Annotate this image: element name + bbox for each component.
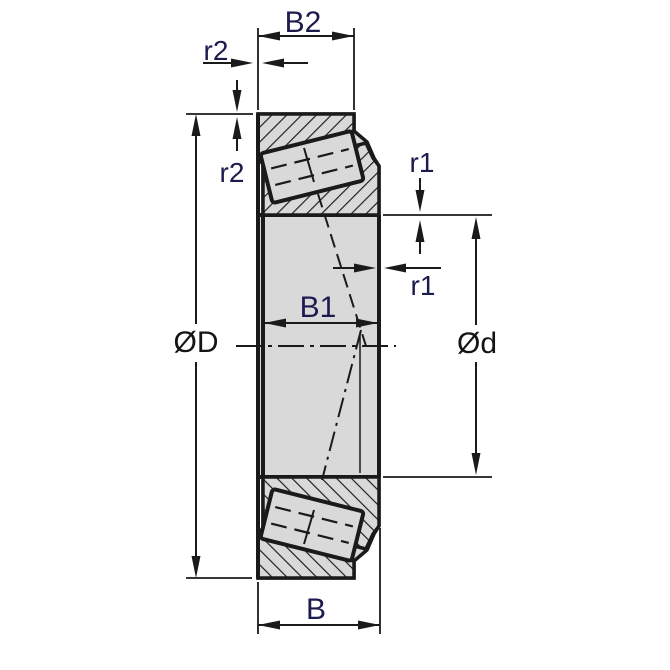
label-b1: B1 (300, 291, 337, 324)
bearing-cross-section-drawing: B2 r2 r2 ØD Ød (0, 0, 670, 670)
dimension-bore-diameter: Ød (383, 215, 497, 477)
bore-block (259, 215, 379, 477)
bearing-lower-half (258, 477, 379, 578)
label-outer-diameter: ØD (174, 326, 219, 359)
label-r1-top: r1 (410, 147, 435, 178)
dimension-r2-left: r2 (220, 80, 245, 188)
label-bore-diameter: Ød (457, 327, 497, 360)
label-r2-left: r2 (220, 157, 245, 188)
dimension-r2-top: r2 (203, 35, 308, 68)
bearing-upper-half (258, 114, 379, 215)
label-b2: B2 (285, 6, 322, 39)
label-b: B (306, 593, 326, 626)
dimension-r1-top: r1 (410, 147, 435, 254)
label-r2-top: r2 (204, 35, 229, 66)
label-r1-right: r1 (411, 270, 436, 301)
bearing-diagram-canvas: B2 r2 r2 ØD Ød (0, 0, 670, 670)
dimension-b2: B2 (258, 6, 354, 110)
